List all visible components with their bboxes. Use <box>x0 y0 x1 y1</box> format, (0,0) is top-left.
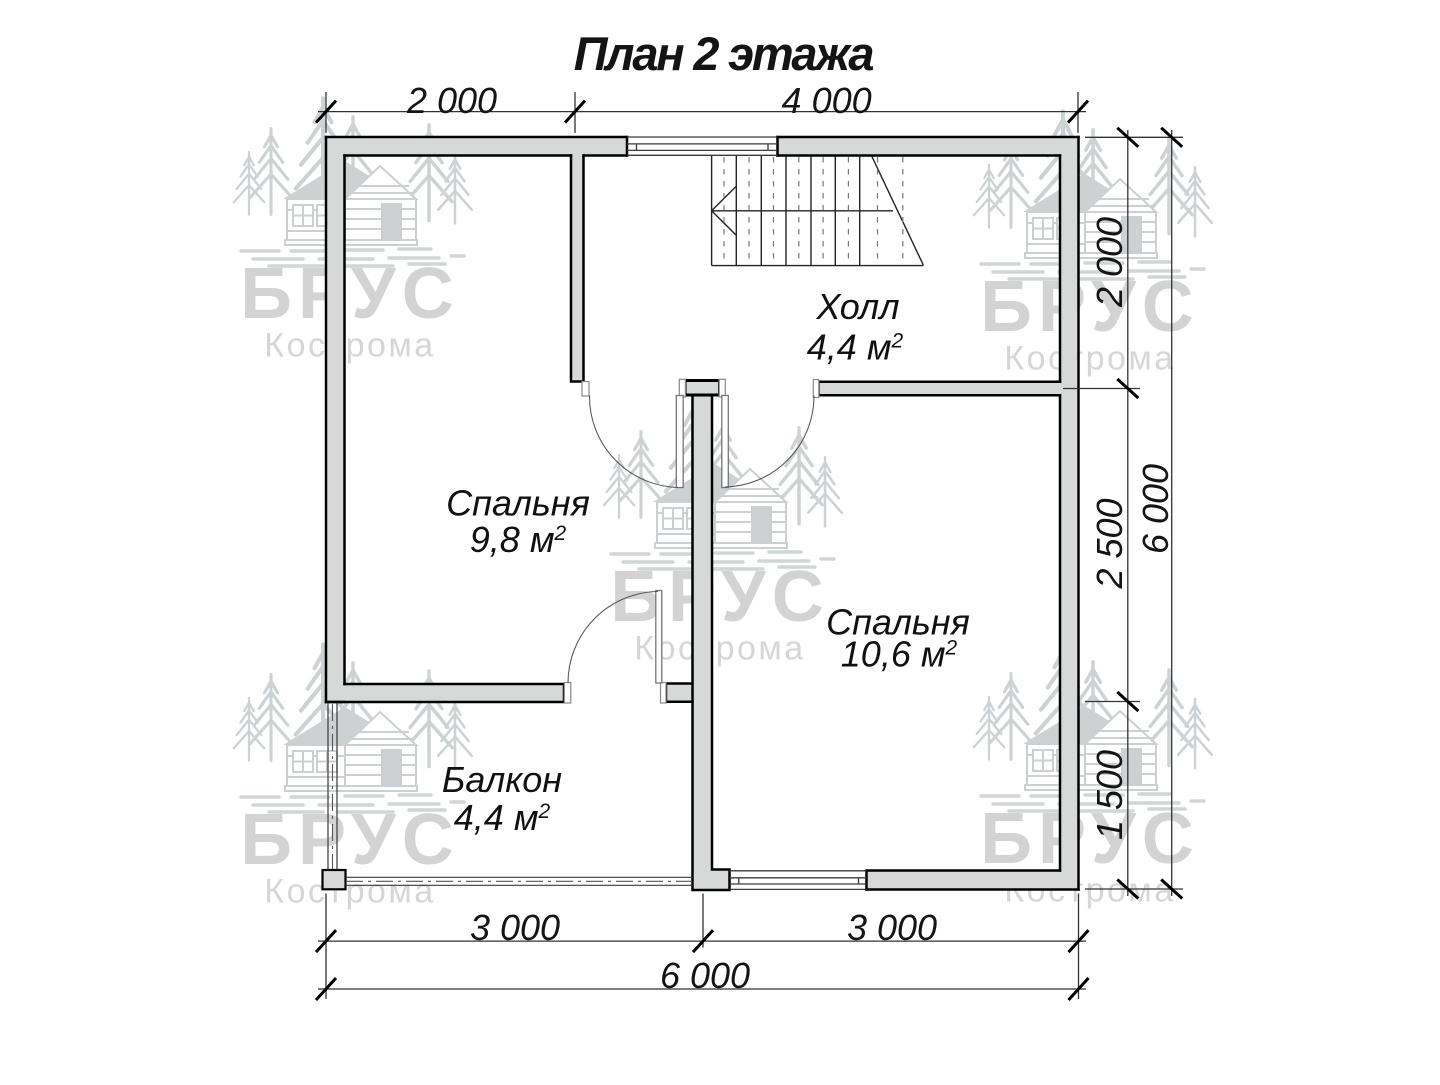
svg-text:2 500: 2 500 <box>1089 498 1130 589</box>
svg-text:3 000: 3 000 <box>847 907 937 948</box>
svg-text:2 000: 2 000 <box>406 80 497 121</box>
svg-text:План 2 этажа: План 2 этажа <box>574 27 874 80</box>
svg-text:6 000: 6 000 <box>1135 464 1176 554</box>
svg-text:Спальня: Спальня <box>446 483 590 524</box>
svg-text:3 000: 3 000 <box>470 907 560 948</box>
svg-text:10,6 м2: 10,6 м2 <box>841 634 958 675</box>
svg-text:2 000: 2 000 <box>1089 217 1130 308</box>
svg-text:4,4 м2: 4,4 м2 <box>454 797 551 838</box>
svg-text:4 000: 4 000 <box>782 80 872 121</box>
svg-text:9,8 м2: 9,8 м2 <box>470 519 567 560</box>
svg-text:6 000: 6 000 <box>660 955 750 996</box>
svg-text:Балкон: Балкон <box>442 759 562 800</box>
svg-text:4,4 м2: 4,4 м2 <box>807 327 904 368</box>
svg-text:Холл: Холл <box>815 286 899 327</box>
svg-text:1 500: 1 500 <box>1089 750 1130 840</box>
